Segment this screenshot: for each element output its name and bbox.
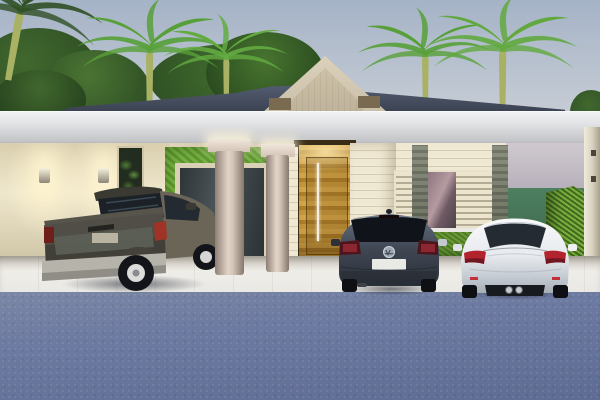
pickup-truck <box>36 181 228 295</box>
vw-golf-hatchback <box>329 197 449 294</box>
street-pavement <box>0 292 600 400</box>
eave-bracket-left <box>269 98 291 110</box>
carport-column-1 <box>208 139 250 275</box>
column-2-shaft <box>266 155 289 272</box>
column-1-shaft <box>215 151 244 275</box>
door-pull-handle <box>317 163 319 241</box>
carport-column-2 <box>261 144 295 272</box>
lavender-wall <box>506 143 592 191</box>
white-coupe <box>453 199 577 300</box>
palm-tree-4 <box>420 0 586 114</box>
eave-bracket-right <box>358 96 380 108</box>
gate-hinge-1 <box>591 150 596 156</box>
house-render-scene <box>0 0 600 400</box>
boundary-pillar <box>584 127 600 270</box>
gate-hinge-2 <box>591 176 596 182</box>
